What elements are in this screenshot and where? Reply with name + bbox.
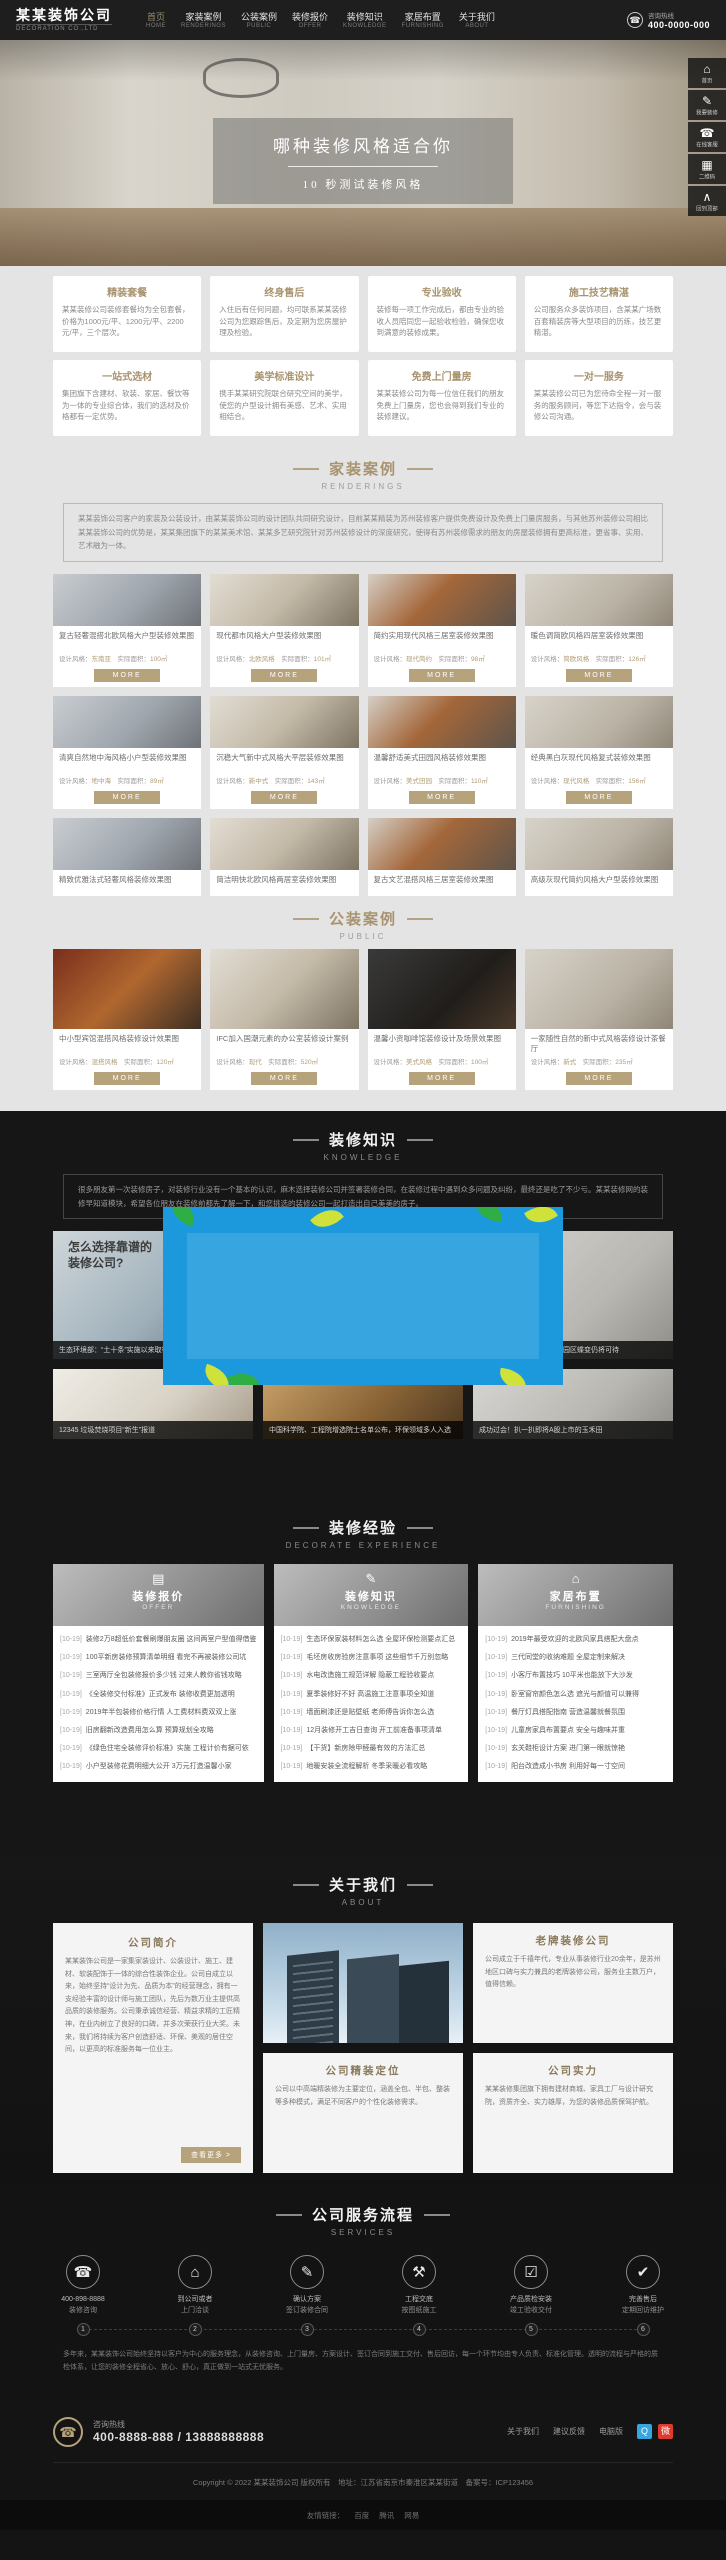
more-button[interactable]: MORE [409, 669, 475, 682]
about-card-title: 公司精装定位 [275, 2063, 451, 2078]
article-title: 玄关鞋柜设计方案 进门第一眼就惊艳 [511, 1740, 625, 1758]
case-meta: 设计风格：地中海 实际面积：89㎡ [59, 775, 195, 785]
case-card[interactable]: 温馨小资咖啡馆装修设计及场景效果图 设计风格：美式风格 实际面积：100㎡ MO… [368, 949, 516, 1090]
article-list: [10-19] 装修2万8超低价套餐刷爆朋友圈 这间两室户型值得借鉴 [10-1… [53, 1626, 264, 1782]
article-title: 2019年最受欢迎的北欧风家具搭配大盘点 [511, 1631, 639, 1649]
case-card[interactable]: IFC加入国潮元素的办公室装修设计案例 设计风格：现代 实际面积：520㎡ MO… [210, 949, 358, 1090]
step-label-2: 装修咨询 [33, 2305, 133, 2316]
article-item[interactable]: [10-19] 三室两厅全包装修报价多少钱 过来人教你省钱攻略 [60, 1667, 257, 1685]
case-title[interactable]: 复古轻奢混搭北欧风格大户型装修效果图 [59, 631, 195, 651]
case-meta: 设计风格：美式风格 实际面积：100㎡ [374, 1056, 510, 1066]
more-button[interactable]: MORE [566, 1072, 632, 1085]
article-date: [10-19] [60, 1740, 82, 1758]
article-title: 2019年半包装修价格行情 人工费材料费双双上涨 [86, 1704, 237, 1722]
case-title[interactable]: IFC加入国潮元素的办公室装修设计案例 [216, 1034, 352, 1054]
heading-dash [293, 1884, 319, 1886]
article-title: 卧室窗帘颜色怎么选 遮光与颜值可以兼得 [511, 1686, 639, 1704]
experience-heading: 装修经验 DECORATE EXPERIENCE [0, 1505, 726, 1558]
about-card-text: 公司以中高端精装修为主要定位，涵盖全包、半包、整装等多种模式，满足不同客户的个性… [275, 2084, 451, 2109]
case-photo [525, 949, 673, 1029]
floatbar-item[interactable]: ∧ 回到顶部 [688, 186, 726, 216]
construction-icon: ⚒ [402, 2255, 436, 2289]
case-card[interactable]: 复古文艺混搭风格三居室装修效果图 设计风格：混搭风格 实际面积：102㎡ MOR… [368, 818, 516, 897]
features-section: 精装套餐 某某装修公司装修套餐均为全包套餐，价格为1000元/平、1200元/平… [0, 266, 726, 446]
step-label-2: 签订装修合同 [257, 2305, 357, 2316]
about-heading: 关于我们 ABOUT [0, 1862, 726, 1915]
step-label-1: 到公司或者 [145, 2294, 245, 2305]
article-title: 100平新房装修预算清单明细 看完不再被装修公司坑 [86, 1649, 247, 1667]
more-button[interactable]: MORE [409, 791, 475, 804]
nav-item[interactable]: 首页 HOME [146, 12, 166, 29]
article-date: [10-19] [281, 1631, 303, 1649]
case-meta: 设计风格：混搭风格 实际面积：120㎡ [59, 1056, 195, 1066]
friend-links-label: 友情链接： [307, 2510, 345, 2521]
case-card[interactable]: 经典黑白灰现代风格复式装修效果图 设计风格：现代风格 实际面积：156㎡ MOR… [525, 696, 673, 809]
experience-column: ✎ 装修知识 KNOWLEDGE [10-19] 生态环保家装材料怎么选 全屋环… [274, 1564, 469, 1782]
heading-dash [407, 918, 433, 920]
article-item[interactable]: [10-19] 夏季装修好不好 高温施工注意事项全知道 [281, 1686, 462, 1704]
weibo-icon[interactable]: 微 [658, 2424, 673, 2439]
offer-icon: ▤ [53, 1572, 264, 1586]
more-button[interactable]: MORE [94, 1072, 160, 1085]
article-date: [10-19] [485, 1704, 507, 1722]
leaf-decoration [227, 1368, 260, 1385]
case-title[interactable]: 现代都市风格大户型装修效果图 [216, 631, 352, 651]
about-card-title: 公司实力 [485, 2063, 661, 2078]
renderings-grid: 复古轻奢混搭北欧风格大户型装修效果图 设计风格：东南亚 实际面积：100㎡ MO… [53, 574, 673, 897]
logo[interactable]: 某某装饰公司 DECORATION CO.,LTD [16, 8, 112, 32]
floatbar-item[interactable]: ✎ 我要装修 [688, 90, 726, 120]
column-title-zh: 装修知识 [274, 1588, 469, 1604]
services-note: 多年来，某某装饰公司始终坚持以客户为中心的服务理念，从装修咨询、上门量房、方案设… [63, 2348, 663, 2375]
feature-body: 装修每一项工作完成后，都由专业的验收人员陪同您一起验收检验，确保您收到满意的装修… [377, 304, 507, 339]
nav-item-en: RENDERINGS [181, 23, 226, 29]
step-label-1: 400-898-8888 [33, 2294, 133, 2305]
step-number: 2 [189, 2323, 202, 2336]
section-subtitle: DECORATE EXPERIENCE [0, 1541, 726, 1550]
feature-body: 某某装修公司装修套餐均为全包套餐，价格为1000元/平、1200元/平、2200… [62, 304, 192, 339]
article-title: 地暖安装全流程解析 冬季采暖必看攻略 [306, 1758, 427, 1776]
article-item[interactable]: [10-19] 玄关鞋柜设计方案 进门第一眼就惊艳 [485, 1740, 666, 1758]
case-card[interactable]: 中小型宾馆混搭风格装修设计效果图 设计风格：混搭风格 实际面积：120㎡ MOR… [53, 949, 201, 1090]
service-step: ✔ 完善售后 定期回访维护 6 [593, 2255, 693, 2336]
article-date: [10-19] [60, 1704, 82, 1722]
article-date: [10-19] [281, 1740, 303, 1758]
about-card-text: 公司成立于千禧年代，专业从事装修行业20余年，是苏州地区口碑与实力兼具的老牌装修… [485, 1954, 661, 1992]
article-title: 水电改造施工规范详解 隐蔽工程验收要点 [306, 1667, 434, 1685]
main-nav: 首页 HOME 家装案例 RENDERINGS 公装案例 PUBLIC 装修报价… [146, 12, 495, 29]
renderings-heading: 家装案例 RENDERINGS [0, 446, 726, 499]
case-photo [210, 574, 358, 626]
case-photo [53, 949, 201, 1029]
nav-item-en: KNOWLEDGE [343, 23, 387, 29]
step-label-1: 完善售后 [593, 2294, 693, 2305]
about-section: 关于我们 ABOUT 公司简介 某某装饰公司是一家集家装设计、公装设计、施工、建… [0, 1856, 726, 2186]
case-card[interactable]: 现代都市风格大户型装修效果图 设计风格：北欧风格 实际面积：101㎡ MORE [210, 574, 358, 687]
qrcode-icon: ▦ [688, 158, 726, 172]
case-title[interactable]: 经典黑白灰现代风格复式装修效果图 [531, 753, 667, 773]
section-subtitle: RENDERINGS [0, 482, 726, 491]
floatbar-label: 回到顶部 [690, 204, 724, 212]
feature-title: 施工技艺精湛 [534, 284, 664, 299]
news-caption[interactable]: 成功过会！扒一扒即将A股上市的玉禾田 [473, 1421, 673, 1439]
article-item[interactable]: [10-19] 三代同堂的收纳难题 全屋定制来解决 [485, 1649, 666, 1667]
about-card: 公司精装定位 公司以中高端精装修为主要定位，涵盖全包、半包、整装等多种模式，满足… [263, 2053, 463, 2173]
article-date: [10-19] [60, 1649, 82, 1667]
article-item[interactable]: [10-19] 【干货】新房除甲醛最有效的方法汇总 [281, 1740, 462, 1758]
feature-body: 某某装修公司为每一位信任我们的朋友免费上门量房，您也会得到我们专业的装修建议。 [377, 388, 507, 423]
article-item[interactable]: [10-19] 地暖安装全流程解析 冬季采暖必看攻略 [281, 1758, 462, 1776]
article-title: 【干货】新房除甲醛最有效的方法汇总 [306, 1740, 425, 1758]
company-intro-title: 公司简介 [65, 1935, 241, 1950]
case-title[interactable]: 精致优雅法式轻奢风格装修效果图 [59, 875, 195, 895]
case-card[interactable]: 一家随性自然的新中式风格装修设计茶餐厅 设计风格：新式 实际面积：235㎡ MO… [525, 949, 673, 1090]
case-meta: 设计风格：现代简约 实际面积：98㎡ [374, 653, 510, 663]
article-title: 《绿色住宅全装修评价标准》实施 工程计价有据可依 [86, 1740, 249, 1758]
case-photo [525, 574, 673, 626]
service-steps: ☎ 400-898-8888 装修咨询 1 ⌂ 到公司或者 上门洽谈 2 ✎ 确… [33, 2255, 693, 2336]
experience-column-header[interactable]: ✎ 装修知识 KNOWLEDGE [274, 1564, 469, 1626]
heading-dash [407, 1139, 433, 1141]
more-button[interactable]: MORE [251, 791, 317, 804]
feature-card: 免费上门量房 某某装修公司为每一位信任我们的朋友免费上门量房，您也会得到我们专业… [368, 360, 516, 436]
decorate-icon: ✎ [688, 94, 726, 108]
case-photo [368, 574, 516, 626]
footer-link[interactable]: 建议反馈 [553, 2426, 585, 2437]
footer-link[interactable]: 电脑版 [599, 2426, 623, 2437]
case-title[interactable]: 简洁明快北欧风格两居室装修效果图 [216, 875, 352, 895]
case-card[interactable]: 沉稳大气新中式风格大平层装修效果图 设计风格：新中式 实际面积：143㎡ MOR… [210, 696, 358, 809]
step-label-2: 定期回访维护 [593, 2305, 693, 2316]
case-photo [53, 818, 201, 870]
article-date: [10-19] [485, 1758, 507, 1776]
feature-body: 入住后有任何问题，均可联系某某装修公司为您跟踪售后，及定期为您房屋护理及检验。 [219, 304, 349, 339]
article-title: 三室两厅全包装修报价多少钱 过来人教你省钱攻略 [86, 1667, 242, 1685]
article-item[interactable]: [10-19] 卧室窗帘颜色怎么选 遮光与颜值可以兼得 [485, 1686, 666, 1704]
phone-icon: ☎ [53, 2417, 83, 2447]
case-title[interactable]: 暖色调简欧风格四居室装修效果图 [531, 631, 667, 651]
about-card-text: 某某装修集团旗下拥有建材商城、家具工厂与设计研究院，资质齐全、实力雄厚，为您的装… [485, 2084, 661, 2109]
step-label-1: 工程交底 [369, 2294, 469, 2305]
article-title: 12月装修开工吉日查询 开工前准备事项清单 [306, 1722, 442, 1740]
friend-link[interactable]: 网易 [404, 2510, 419, 2521]
furnishing-icon: ⌂ [478, 1572, 673, 1586]
case-card[interactable]: 复古轻奢混搭北欧风格大户型装修效果图 设计风格：东南亚 实际面积：100㎡ MO… [53, 574, 201, 687]
article-item[interactable]: [10-19] 小户型装修花费明细大公开 3万元打造温馨小家 [60, 1758, 257, 1776]
more-button[interactable]: MORE [566, 791, 632, 804]
case-meta: 设计风格：美式田园 实际面积：110㎡ [374, 775, 510, 785]
footer: ☎ 咨询热线 400-8888-888 / 13888888888 关于我们 建… [0, 2401, 726, 2560]
section-title: 装修经验 [329, 1517, 397, 1538]
more-button[interactable]: MORE [251, 1072, 317, 1085]
feature-body: 携手某某研究院联合研究空间的美学，使您的户型设计拥有美感、艺术、实用相结合。 [219, 388, 349, 423]
friend-link[interactable]: 百度 [354, 2510, 369, 2521]
more-button[interactable]: MORE [94, 791, 160, 804]
section-subtitle: SERVICES [0, 2228, 726, 2237]
article-item[interactable]: [10-19] 2019年最受欢迎的北欧风家具搭配大盘点 [485, 1631, 666, 1649]
case-title[interactable]: 复古文艺混搭风格三居室装修效果图 [374, 875, 510, 895]
article-date: [10-19] [60, 1631, 82, 1649]
more-button[interactable]: MORE [409, 1072, 475, 1085]
friend-link[interactable]: 腾讯 [379, 2510, 394, 2521]
service-step: ⚒ 工程交底 按图纸施工 4 [369, 2255, 469, 2336]
footer-links: 关于我们 建议反馈 电脑版 Q 微 [507, 2424, 673, 2439]
footer-hotline-label: 咨询热线 [93, 2419, 264, 2430]
about-grid: 公司简介 某某装饰公司是一家集家装设计、公装设计、施工、建材、软装配饰于一体的综… [53, 1923, 673, 2173]
video-pane [187, 1233, 539, 1359]
nav-item[interactable]: 公装案例 PUBLIC [241, 12, 277, 29]
column-title-zh: 装修报价 [53, 1588, 264, 1604]
nav-item-en: PUBLIC [241, 23, 277, 29]
public-grid: 中小型宾馆混搭风格装修设计效果图 设计风格：混搭风格 实际面积：120㎡ MOR… [53, 949, 673, 1090]
step-label-2: 上门洽谈 [145, 2305, 245, 2316]
case-photo [210, 696, 358, 748]
hero-banner: 哪种装修风格适合你 10 秒测试装修风格 [0, 40, 726, 266]
renderings-section: 家装案例 RENDERINGS 某某装饰公司客户的家装及公装设计，由某某装饰公司… [0, 446, 726, 896]
feature-body: 集团旗下含建材、软装、家居、餐饮等为一体的专业综合体，我们的选材及价格都有一定优… [62, 388, 192, 423]
article-date: [10-19] [485, 1649, 507, 1667]
leaf-decoration [474, 1207, 505, 1222]
leaf-decoration [166, 1207, 199, 1227]
section-title: 装修知识 [329, 1129, 397, 1150]
case-card[interactable]: 暖色调简欧风格四居室装修效果图 设计风格：简欧风格 实际面积：126㎡ MORE [525, 574, 673, 687]
case-meta: 设计风格：现代 实际面积：520㎡ [216, 1056, 352, 1066]
contract-icon: ✎ [290, 2255, 324, 2289]
section-subtitle: KNOWLEDGE [0, 1153, 726, 1162]
article-title: 毛坯房收房验房注意事项 这些细节千万别忽略 [306, 1649, 448, 1667]
knowledge-icon: ✎ [274, 1572, 469, 1586]
article-item[interactable]: [10-19] 《全装修交付标准》正式发布 装修收费更加透明 [60, 1686, 257, 1704]
experience-section: 装修经验 DECORATE EXPERIENCE ▤ 装修报价 OFFER [1… [0, 1501, 726, 1856]
step-number: 4 [413, 2323, 426, 2336]
article-title: 装修2万8超低价套餐刷爆朋友圈 这间两室户型值得借鉴 [86, 1631, 257, 1649]
services-section: 公司服务流程 SERVICES ☎ 400-898-8888 装修咨询 1 ⌂ … [0, 2186, 726, 2401]
feature-card: 终身售后 入住后有任何问题，均可联系某某装修公司为您跟踪售后，及定期为您房屋护理… [210, 276, 358, 352]
step-label-1: 确认方案 [257, 2294, 357, 2305]
copyright-text: Copyright © 2022 某某装饰公司 版权所有 地址：江苏省南京市秦淮… [0, 2463, 726, 2500]
case-meta: 设计风格：北欧风格 实际面积：101㎡ [216, 653, 352, 663]
service-step: ☑ 产品质检安装 竣工验收交付 5 [481, 2255, 581, 2336]
nav-item[interactable]: 装修知识 KNOWLEDGE [343, 12, 387, 29]
floatbar-label: 二维码 [690, 172, 724, 180]
article-date: [10-19] [281, 1649, 303, 1667]
more-button[interactable]: MORE [251, 669, 317, 682]
section-subtitle: ABOUT [0, 1898, 726, 1907]
article-date: [10-19] [485, 1686, 507, 1704]
feature-card: 美学标准设计 携手某某研究院联合研究空间的美学，使您的户型设计拥有美感、艺术、实… [210, 360, 358, 436]
heading-dash [407, 468, 433, 470]
nav-item[interactable]: 装修报价 OFFER [292, 12, 328, 29]
article-list: [10-19] 2019年最受欢迎的北欧风家具搭配大盘点 [10-19] 三代同… [478, 1626, 673, 1782]
nav-item-zh: 关于我们 [459, 12, 495, 23]
case-title[interactable]: 温馨小资咖啡馆装修设计及场景效果图 [374, 1034, 510, 1054]
experience-column: ⌂ 家居布置 FURNISHING [10-19] 2019年最受欢迎的北欧风家… [478, 1564, 673, 1782]
case-meta: 设计风格：新中式 实际面积：143㎡ [216, 775, 352, 785]
article-item[interactable]: [10-19] 儿童房家具布置要点 安全与趣味并重 [485, 1722, 666, 1740]
article-date: [10-19] [281, 1704, 303, 1722]
article-item[interactable]: [10-19] 生态环保家装材料怎么选 全屋环保检测要点汇总 [281, 1631, 462, 1649]
article-item[interactable]: [10-19] 装修2万8超低价套餐刷爆朋友圈 这间两室户型值得借鉴 [60, 1631, 257, 1649]
heading-dash [407, 1527, 433, 1529]
case-meta: 设计风格：新式 实际面积：235㎡ [531, 1056, 667, 1066]
case-card[interactable]: 清爽自然地中海风格小户型装修效果图 设计风格：地中海 实际面积：89㎡ MORE [53, 696, 201, 809]
floatbar-item[interactable]: ☎ 在线客服 [688, 122, 726, 152]
service-step: ⌂ 到公司或者 上门洽谈 2 [145, 2255, 245, 2336]
article-date: [10-19] [60, 1758, 82, 1776]
case-meta: 设计风格：简欧风格 实际面积：126㎡ [531, 653, 667, 663]
case-photo [53, 696, 201, 748]
step-label-2: 竣工验收交付 [481, 2305, 581, 2316]
article-item[interactable]: [10-19] 餐厅灯具搭配指南 营造温馨就餐氛围 [485, 1704, 666, 1722]
feature-card: 精装套餐 某某装修公司装修套餐均为全包套餐，价格为1000元/平、1200元/平… [53, 276, 201, 352]
footer-link[interactable]: 关于我们 [507, 2426, 539, 2437]
article-item[interactable]: [10-19] 12月装修开工吉日查询 开工前准备事项清单 [281, 1722, 462, 1740]
heading-dash [407, 1884, 433, 1886]
article-date: [10-19] [60, 1667, 82, 1685]
hotline-label: 咨询热线 [648, 10, 710, 20]
case-photo [525, 696, 673, 748]
article-date: [10-19] [281, 1667, 303, 1685]
column-title-en: KNOWLEDGE [274, 1604, 469, 1611]
experience-column-header[interactable]: ▤ 装修报价 OFFER [53, 1564, 264, 1626]
article-date: [10-19] [485, 1667, 507, 1685]
service-step: ☎ 400-898-8888 装修咨询 1 [33, 2255, 133, 2336]
leaf-decoration [498, 1368, 529, 1385]
step-number: 1 [77, 2323, 90, 2336]
ad-headline: 怎么选择靠谱的 装修公司? [56, 1221, 152, 1271]
nav-item-zh: 装修知识 [343, 12, 387, 23]
floatbar-label: 在线客服 [690, 140, 724, 148]
nav-item[interactable]: 家装案例 RENDERINGS [181, 12, 226, 29]
case-card[interactable]: 简约实用现代风格三居室装修效果图 设计风格：现代简约 实际面积：98㎡ MORE [368, 574, 516, 687]
heading-dash [293, 1139, 319, 1141]
services-heading: 公司服务流程 SERVICES [0, 2192, 726, 2245]
footer-contact-bar: ☎ 咨询热线 400-8888-888 / 13888888888 关于我们 建… [53, 2401, 673, 2463]
article-title: 小客厅布置技巧 10平米也能放下大沙发 [511, 1667, 633, 1685]
qq-icon[interactable]: Q [637, 2424, 652, 2439]
floating-toolbar: ⌂ 首页 ✎ 我要装修 ☎ 在线客服 ▦ 二维码 ∧ 回到顶部 [688, 58, 726, 216]
news-caption[interactable]: 12345 垃圾焚烧项目“新生”报道 [53, 1421, 253, 1439]
nav-item-zh: 首页 [146, 12, 166, 23]
case-photo [368, 696, 516, 748]
friend-links-bar: 友情链接： 百度 腾讯 网易 [0, 2500, 726, 2530]
case-title[interactable]: 温馨舒适美式田园风格装修效果图 [374, 753, 510, 773]
backtop-icon: ∧ [688, 190, 726, 204]
article-item[interactable]: [10-19] 毛坯房收房验房注意事项 这些细节千万别忽略 [281, 1649, 462, 1667]
article-item[interactable]: [10-19] 100平新房装修预算清单明细 看完不再被装修公司坑 [60, 1649, 257, 1667]
news-caption[interactable]: 中国科学院、工程院增选院士名单公布，环保领域多人入选 [263, 1421, 463, 1439]
article-item[interactable]: [10-19] 旧房翻新改造费用怎么算 预算规划全攻略 [60, 1722, 257, 1740]
case-photo [210, 949, 358, 1029]
experience-column: ▤ 装修报价 OFFER [10-19] 装修2万8超低价套餐刷爆朋友圈 这间两… [53, 1564, 264, 1782]
section-subtitle: PUBLIC [0, 932, 726, 941]
video-overlay[interactable] [163, 1207, 563, 1385]
nav-item-en: HOME [146, 23, 166, 29]
floatbar-item[interactable]: ▦ 二维码 [688, 154, 726, 184]
article-date: [10-19] [60, 1722, 82, 1740]
feature-title: 一站式选材 [62, 368, 192, 383]
knowledge-heading: 装修知识 KNOWLEDGE [0, 1117, 726, 1170]
step-number: 5 [525, 2323, 538, 2336]
article-title: 《全装修交付标准》正式发布 装修收费更加透明 [86, 1686, 235, 1704]
case-photo [53, 574, 201, 626]
article-item[interactable]: [10-19] 阳台改造成小书房 利用好每一寸空间 [485, 1758, 666, 1776]
page: 某某装饰公司 DECORATION CO.,LTD 首页 HOME 家装案例 R… [0, 0, 726, 2560]
article-title: 夏季装修好不好 高温施工注意事项全知道 [306, 1686, 434, 1704]
floatbar-item[interactable]: ⌂ 首页 [688, 58, 726, 88]
feature-body: 公司服务众多装饰项目，含某某广场数百套精装房等大型项目的历练，技艺更精湛。 [534, 304, 664, 339]
view-more-button[interactable]: 查看更多 > [181, 2147, 241, 2163]
style-test-banner[interactable]: 哪种装修风格适合你 10 秒测试装修风格 [213, 118, 513, 204]
case-photo [210, 818, 358, 870]
nav-item-zh: 家装案例 [181, 12, 226, 23]
nav-item[interactable]: 关于我们 ABOUT [459, 12, 495, 29]
case-photo [368, 949, 516, 1029]
case-title[interactable]: 高级灰现代简约风格大户型装修效果图 [531, 875, 667, 895]
case-title[interactable]: 中小型宾馆混搭风格装修设计效果图 [59, 1034, 195, 1054]
feature-card: 专业验收 装修每一项工作完成后，都由专业的验收人员陪同您一起验收检验，确保您收到… [368, 276, 516, 352]
case-photo [525, 818, 673, 870]
case-card[interactable]: 高级灰现代简约风格大户型装修效果图 设计风格：现代简约 实际面积：135㎡ MO… [525, 818, 673, 897]
article-item[interactable]: [10-19] 2019年半包装修价格行情 人工费材料费双双上涨 [60, 1704, 257, 1722]
case-title[interactable]: 沉稳大气新中式风格大平层装修效果图 [216, 753, 352, 773]
article-title: 阳台改造成小书房 利用好每一寸空间 [511, 1758, 625, 1776]
article-item[interactable]: [10-19] 墙面刷漆还是贴壁纸 老师傅告诉你怎么选 [281, 1704, 462, 1722]
more-button[interactable]: MORE [566, 669, 632, 682]
about-card: 老牌装修公司 公司成立于千禧年代，专业从事装修行业20余年，是苏州地区口碑与实力… [473, 1923, 673, 2043]
article-date: [10-19] [485, 1722, 507, 1740]
article-item[interactable]: [10-19] 水电改造施工规范详解 隐蔽工程验收要点 [281, 1667, 462, 1685]
hotline-number: 400-0000-000 [648, 20, 710, 30]
article-date: [10-19] [485, 1740, 507, 1758]
article-date: [10-19] [281, 1686, 303, 1704]
case-title[interactable]: 一家随性自然的新中式风格装修设计茶餐厅 [531, 1034, 667, 1054]
article-date: [10-19] [281, 1758, 303, 1776]
public-heading: 公装案例 PUBLIC [0, 896, 726, 949]
phone-icon: ☎ [66, 2255, 100, 2289]
case-card[interactable]: 温馨舒适美式田园风格装修效果图 设计风格：美式田园 实际面积：110㎡ MORE [368, 696, 516, 809]
nav-item[interactable]: 家居布置 FURNISHING [402, 12, 444, 29]
article-list: [10-19] 生态环保家装材料怎么选 全屋环保检测要点汇总 [10-19] 毛… [274, 1626, 469, 1782]
article-title: 三代同堂的收纳难题 全屋定制来解决 [511, 1649, 625, 1667]
section-title: 公司服务流程 [312, 2204, 414, 2225]
case-meta: 设计风格：东南亚 实际面积：100㎡ [59, 653, 195, 663]
header: 某某装饰公司 DECORATION CO.,LTD 首页 HOME 家装案例 R… [0, 0, 726, 40]
nav-item-zh: 家居布置 [402, 12, 444, 23]
feature-card: 一对一服务 某某装修公司已为您待命全程一对一服务的服务顾问，等您下达指令，会与装… [525, 360, 673, 436]
feature-card: 施工技艺精湛 公司服务众多装饰项目，含某某广场数百套精装房等大型项目的历练，技艺… [525, 276, 673, 352]
feature-title: 美学标准设计 [219, 368, 349, 383]
experience-column-header[interactable]: ⌂ 家居布置 FURNISHING [478, 1564, 673, 1626]
features-row-1: 精装套餐 某某装修公司装修套餐均为全包套餐，价格为1000元/平、1200元/平… [53, 276, 673, 352]
visit-icon: ⌂ [178, 2255, 212, 2289]
article-title: 生态环保家装材料怎么选 全屋环保检测要点汇总 [306, 1631, 455, 1649]
article-item[interactable]: [10-19] 小客厅布置技巧 10平米也能放下大沙发 [485, 1667, 666, 1685]
case-title[interactable]: 简约实用现代风格三居室装修效果图 [374, 631, 510, 651]
phone-icon: ☎ [627, 12, 643, 28]
about-card: 公司实力 某某装修集团旗下拥有建材商城、家具工厂与设计研究院，资质齐全、实力雄厚… [473, 2053, 673, 2173]
case-card[interactable]: 精致优雅法式轻奢风格装修效果图 设计风格：法式轻奢 实际面积：120㎡ MORE [53, 818, 201, 897]
features-row-2: 一站式选材 集团旗下含建材、软装、家居、餐饮等为一体的专业综合体，我们的选材及价… [53, 360, 673, 436]
article-title: 旧房翻新改造费用怎么算 预算规划全攻略 [86, 1722, 214, 1740]
more-button[interactable]: MORE [94, 669, 160, 682]
case-title[interactable]: 清爽自然地中海风格小户型装修效果图 [59, 753, 195, 773]
feature-title: 免费上门量房 [377, 368, 507, 383]
banner-title: 哪种装修风格适合你 [223, 132, 503, 157]
article-item[interactable]: [10-19] 《绿色住宅全装修评价标准》实施 工程计价有据可依 [60, 1740, 257, 1758]
nav-item-en: FURNISHING [402, 23, 444, 29]
case-card[interactable]: 简洁明快北欧风格两居室装修效果图 设计风格：北欧风格 实际面积：85㎡ MORE [210, 818, 358, 897]
